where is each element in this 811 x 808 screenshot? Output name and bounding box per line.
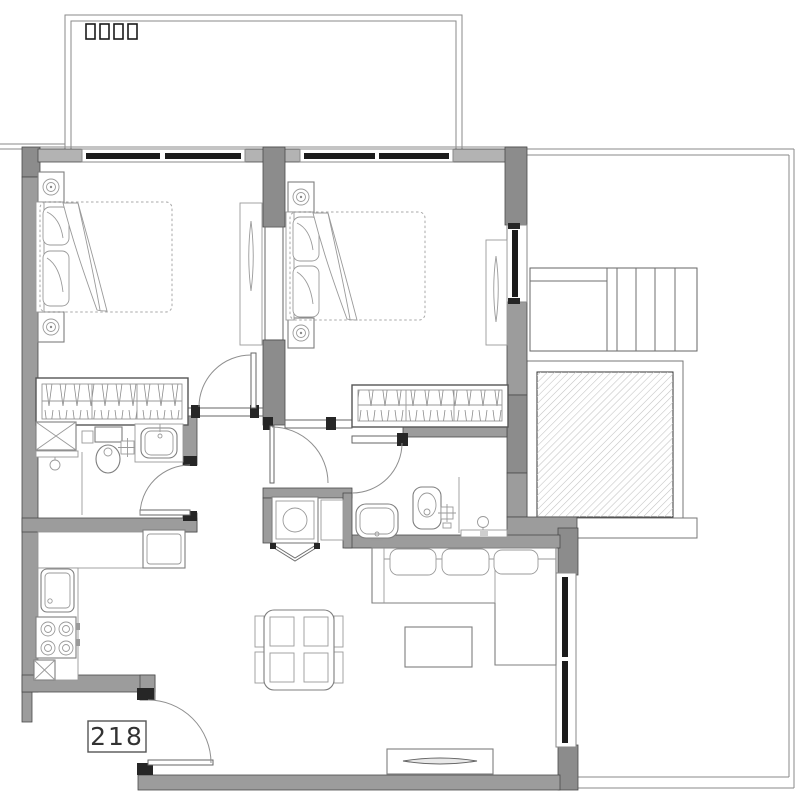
skylight	[527, 361, 697, 538]
wardrobe	[36, 378, 188, 425]
wall-segment	[558, 745, 578, 790]
side-cabinet	[321, 500, 343, 540]
window-jamb	[508, 223, 520, 229]
door-header	[285, 420, 352, 428]
wall-segment	[263, 147, 285, 227]
wall-segment	[263, 340, 285, 425]
bedroom-1-window	[82, 149, 245, 162]
partition-thin	[265, 227, 283, 340]
staircase	[530, 268, 697, 351]
door-jamb	[326, 417, 336, 430]
wall-segment	[22, 147, 40, 177]
door-leaf	[270, 426, 274, 483]
door-glass	[562, 661, 568, 743]
pillow	[293, 217, 319, 261]
floor-drain-icon	[118, 438, 137, 457]
wall-segment	[558, 528, 578, 575]
wall-segment	[343, 493, 352, 548]
cooktop-icon	[36, 617, 80, 658]
kitchen-sink-icon	[41, 569, 74, 612]
wardrobe	[352, 385, 508, 427]
refrigerator-icon	[143, 530, 185, 568]
pillow	[43, 251, 69, 306]
wall-segment	[38, 149, 82, 162]
door-leaf	[352, 436, 403, 443]
window-jamb	[508, 298, 520, 304]
door-glass	[562, 577, 568, 657]
window-glass	[165, 153, 241, 159]
duct-shaft-icon	[36, 422, 76, 450]
unit-number: 218	[90, 722, 144, 751]
door-leaf	[251, 353, 256, 408]
wall-segment	[507, 302, 527, 395]
skylight-hatch	[537, 372, 673, 517]
sliding-glass-door	[556, 573, 576, 747]
pillow	[293, 266, 319, 317]
washing-machine-icon	[272, 497, 318, 543]
wall-segment	[22, 692, 32, 722]
door-jamb	[137, 688, 154, 700]
window-glass	[512, 230, 518, 297]
window-glass	[86, 153, 160, 159]
wall-segment	[505, 147, 527, 225]
tv-console	[387, 749, 493, 774]
bedroom-2-window	[300, 149, 453, 162]
coffee-table	[405, 627, 472, 667]
wall-segment	[453, 149, 507, 162]
door-leaf	[148, 760, 213, 765]
floor-plan: 218	[0, 0, 811, 808]
mirror-cabinet	[486, 240, 507, 345]
wall-segment	[507, 395, 527, 473]
dining-set	[255, 610, 343, 690]
toilet-icon	[413, 487, 441, 529]
bedroom-2-side-window	[507, 223, 527, 304]
washbasin-icon	[135, 424, 183, 462]
wall-segment	[138, 775, 560, 790]
sofa-cushion	[390, 549, 436, 575]
door-leaf	[140, 510, 190, 515]
mirror-cabinet	[240, 203, 262, 345]
pillow	[43, 207, 69, 245]
dining-table	[264, 610, 334, 690]
stair-outline	[530, 268, 697, 351]
duct-shaft-icon	[34, 660, 55, 680]
window-glass	[304, 153, 375, 159]
unit-label: 218	[88, 721, 146, 752]
washbasin-icon	[356, 504, 398, 540]
sofa-cushion	[494, 550, 538, 574]
door-jamb	[397, 433, 408, 446]
wall-segment	[507, 473, 527, 517]
sofa-cushion	[442, 549, 489, 575]
window-glass	[379, 153, 449, 159]
